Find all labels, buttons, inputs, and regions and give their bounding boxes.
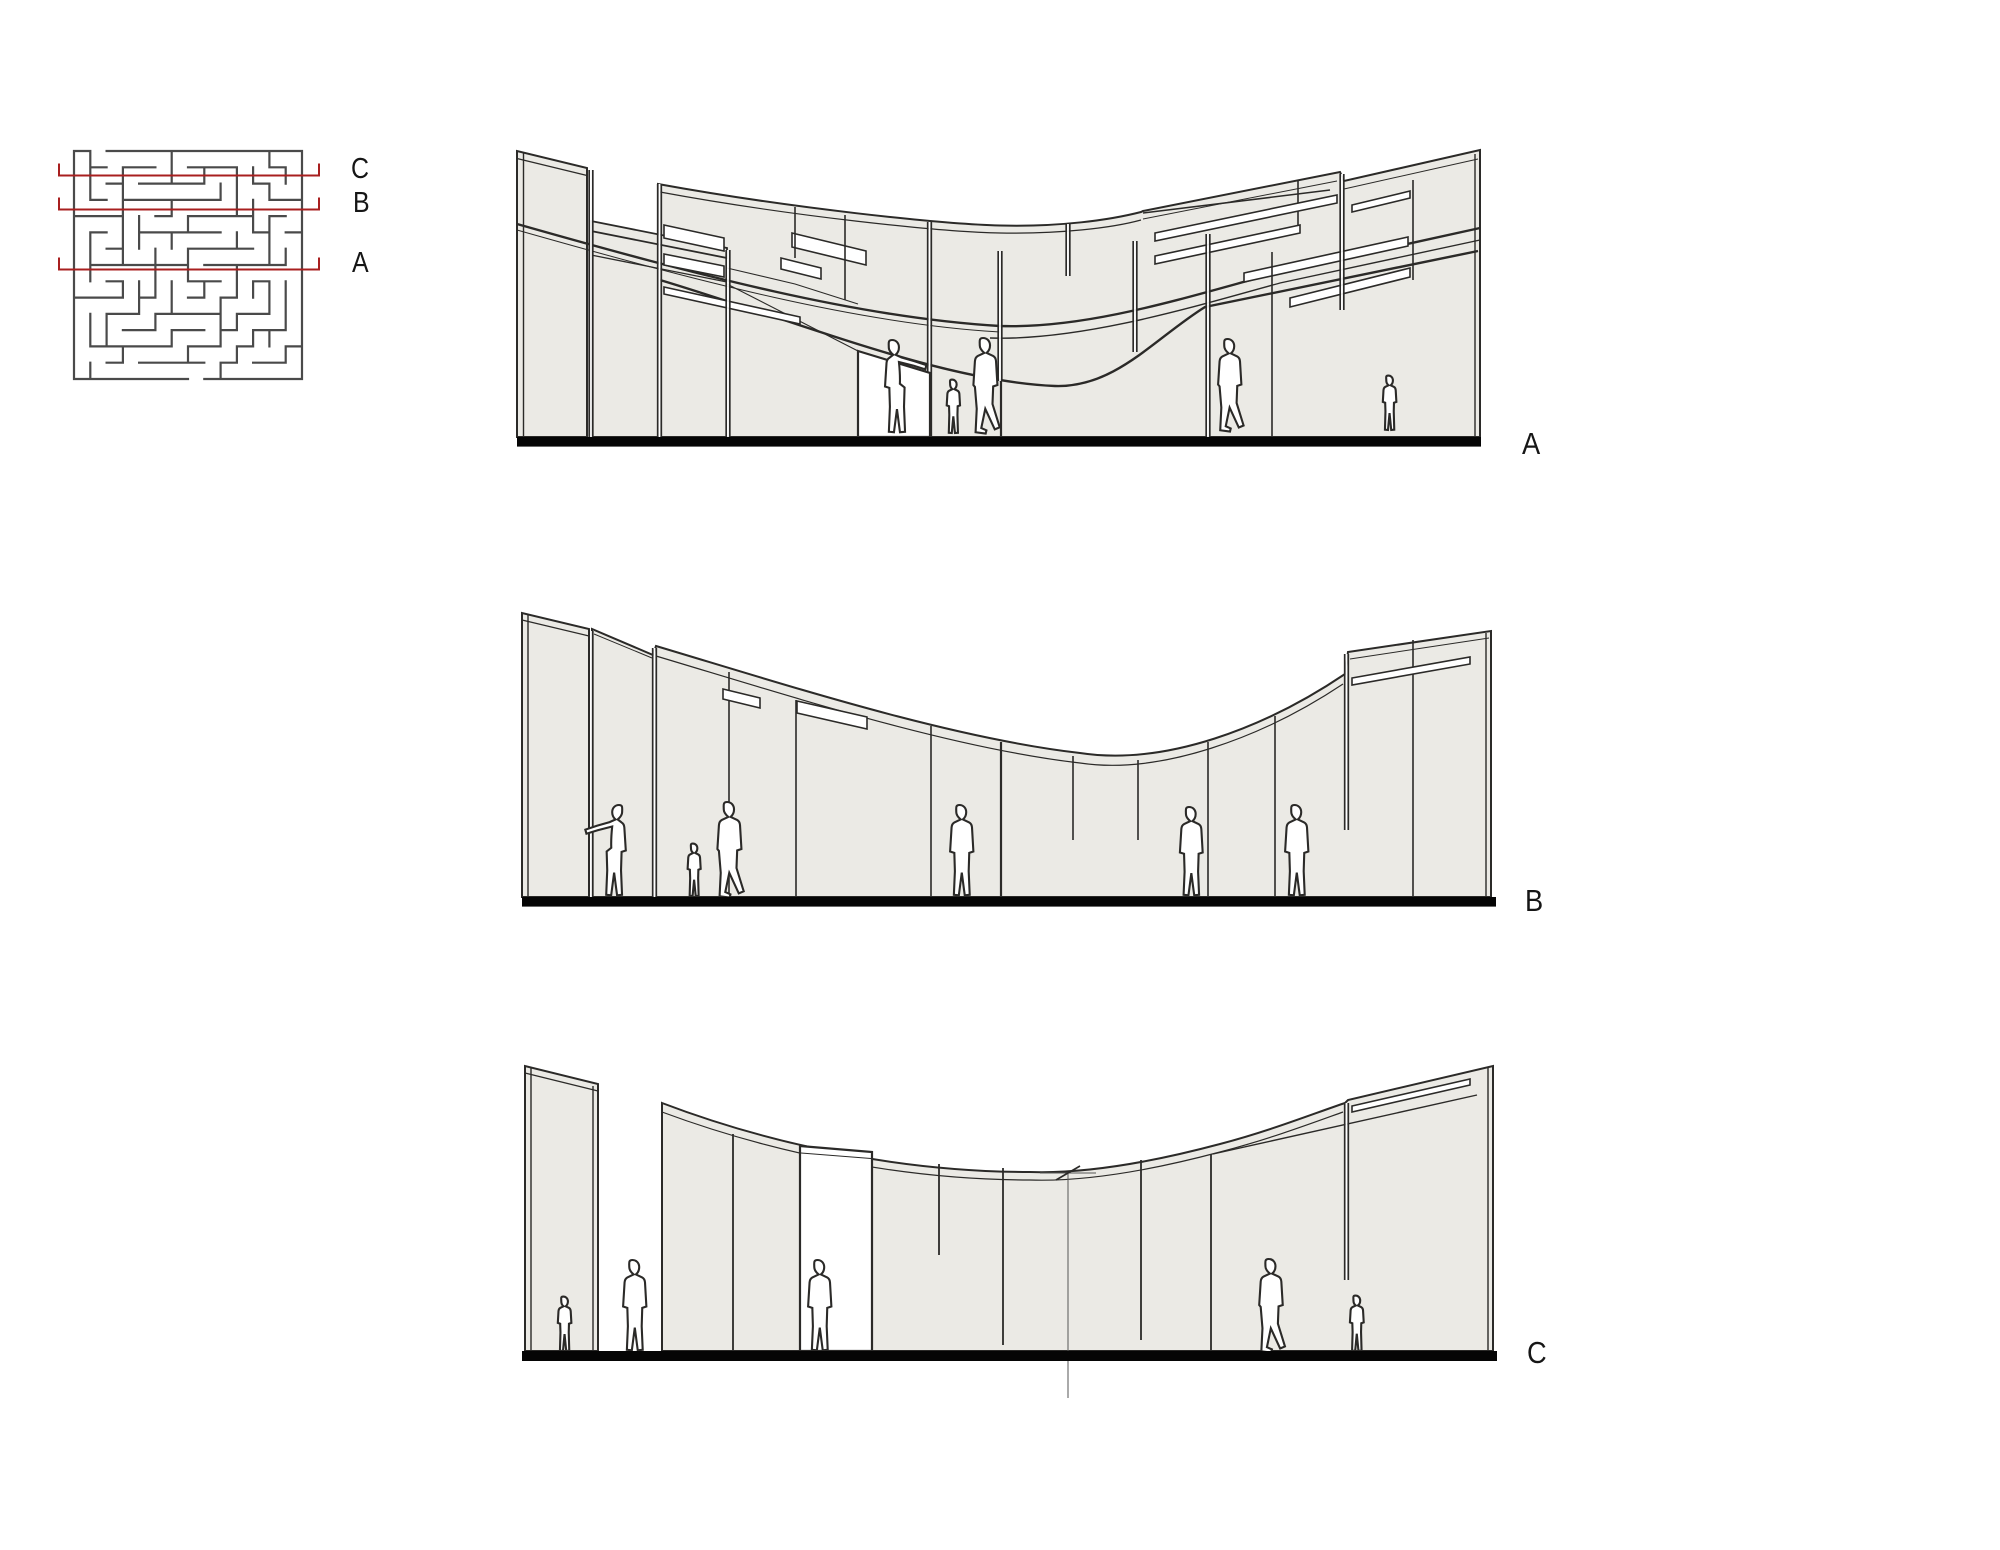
svg-text:C: C <box>1527 1336 1547 1370</box>
svg-text:C: C <box>351 152 369 184</box>
svg-text:B: B <box>353 186 370 218</box>
svg-text:B: B <box>1525 884 1543 918</box>
svg-text:A: A <box>1522 427 1541 461</box>
svg-text:A: A <box>352 246 369 278</box>
